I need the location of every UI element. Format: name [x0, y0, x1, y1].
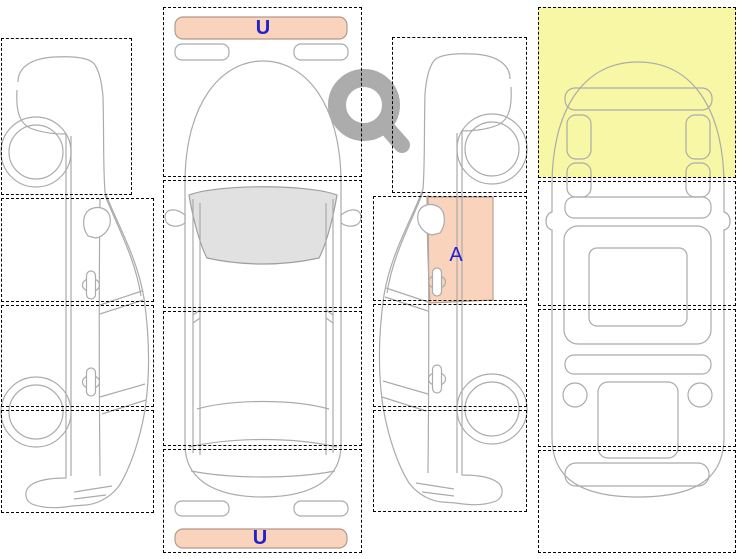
- zone-top-rear-roof[interactable]: [163, 311, 362, 446]
- zone-top-front-roof[interactable]: [163, 180, 362, 308]
- zone-under-rear[interactable]: [538, 450, 736, 553]
- zone-right-front-fender[interactable]: [392, 37, 527, 193]
- zone-left-rear-door[interactable]: [1, 305, 154, 407]
- zone-left-rear-fender[interactable]: [1, 410, 154, 513]
- zone-under-front[interactable]: [538, 7, 736, 178]
- zone-left-front-fender[interactable]: [1, 38, 132, 195]
- vehicle-damage-diagram: U U A: [0, 0, 753, 559]
- zone-under-mid-front[interactable]: [538, 181, 736, 306]
- zone-top-rear-section[interactable]: [163, 449, 362, 553]
- zone-right-front-door[interactable]: [373, 196, 527, 301]
- zone-left-front-door[interactable]: [1, 198, 154, 302]
- zone-right-rear-door[interactable]: [373, 304, 527, 407]
- zone-top-front-section[interactable]: [163, 7, 362, 177]
- zone-under-mid-rear[interactable]: [538, 309, 736, 447]
- zone-right-rear-fender[interactable]: [373, 410, 527, 512]
